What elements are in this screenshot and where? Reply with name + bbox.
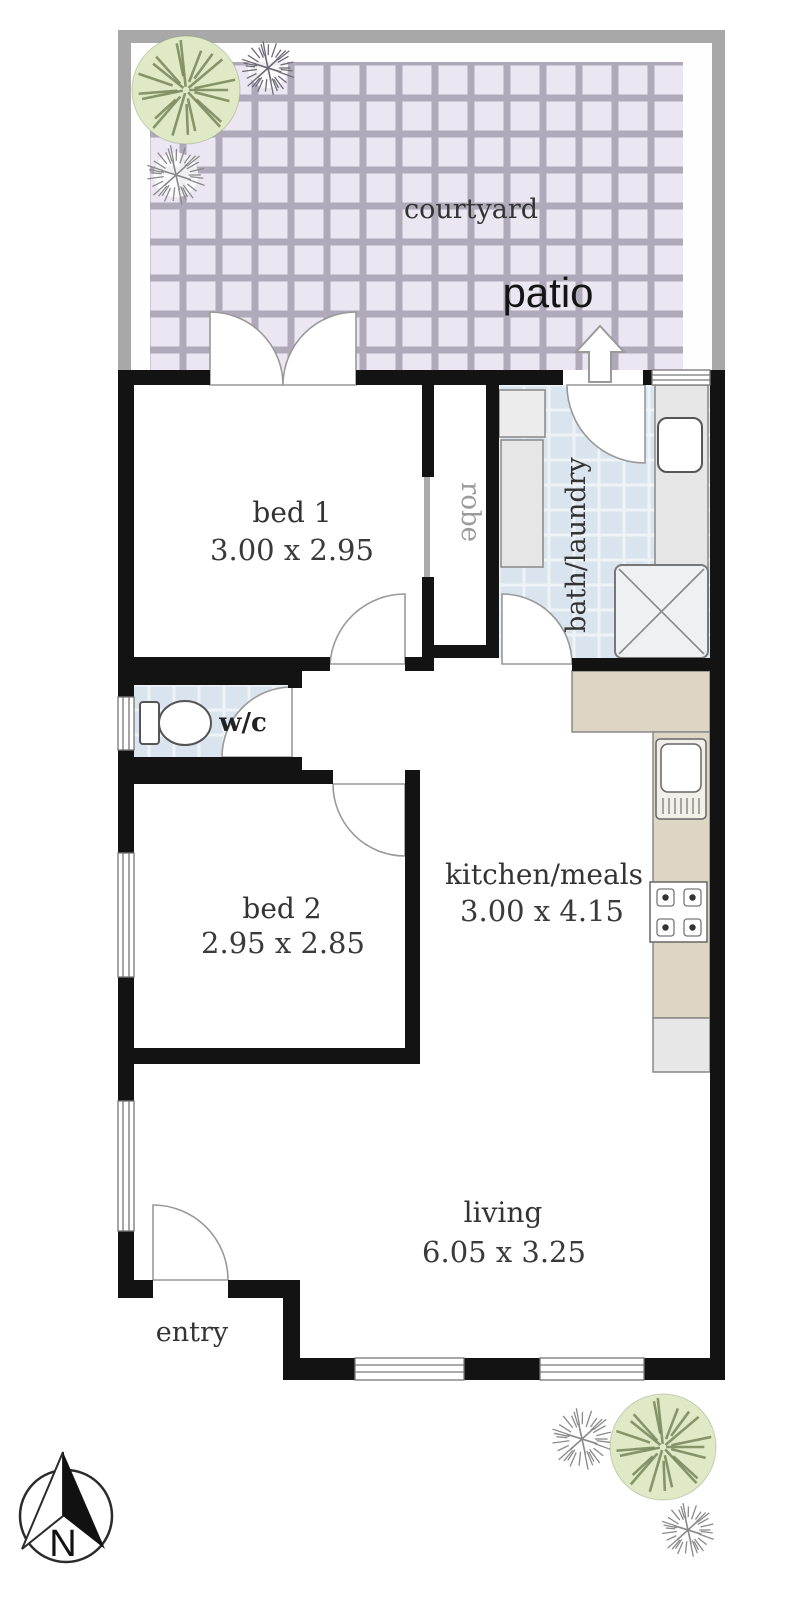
toilet-icon: [140, 701, 211, 745]
door-bed1: [330, 594, 405, 664]
window-living-side: [118, 1101, 134, 1231]
label-courtyard: courtyard: [404, 194, 538, 225]
tree-icon: [132, 36, 240, 144]
door-entry: [153, 1205, 228, 1280]
robe-sliding-door: [424, 477, 430, 577]
label-robe: robe: [455, 482, 485, 542]
shrub-icon: [662, 1503, 714, 1557]
shower-icon: [615, 565, 708, 658]
label-wc: w/c: [218, 708, 267, 738]
kitchen-sink-icon: [656, 739, 706, 819]
compass-icon: N: [20, 1452, 112, 1565]
dims-kitchen: 3.00 x 4.15: [460, 894, 624, 928]
window-living-bottom-2: [540, 1358, 644, 1380]
compass-north-label: N: [49, 1523, 76, 1565]
window-bath-top: [652, 370, 710, 385]
floor-plan: N courtyard patio bed 1 3.00 x 2.95 robe…: [0, 0, 795, 1600]
dims-living: 6.05 x 3.25: [422, 1235, 586, 1269]
window-bed2: [118, 853, 134, 977]
dims-bed1: 3.00 x 2.95: [210, 533, 374, 567]
door-bed2: [333, 784, 405, 856]
shrub-icon: [552, 1408, 611, 1469]
label-patio: patio: [502, 269, 593, 316]
label-kitchen: kitchen/meals: [445, 858, 643, 891]
label-living: living: [464, 1196, 543, 1229]
fridge-appliance: [653, 1018, 710, 1072]
window-living-bottom-1: [355, 1358, 464, 1380]
label-bed2: bed 2: [242, 892, 321, 925]
kitchen-counter: [572, 671, 710, 1018]
laundry-tub-icon: [658, 418, 702, 472]
window-wc: [118, 697, 134, 750]
label-bed1: bed 1: [252, 496, 331, 529]
dims-bed2: 2.95 x 2.85: [201, 926, 365, 960]
tree-icon: [610, 1394, 716, 1500]
floor-plan-page: N courtyard patio bed 1 3.00 x 2.95 robe…: [0, 0, 795, 1600]
cooktop-icon: [650, 882, 707, 942]
label-entry: entry: [156, 1317, 229, 1348]
label-bath-laundry: bath/laundry: [561, 456, 592, 632]
